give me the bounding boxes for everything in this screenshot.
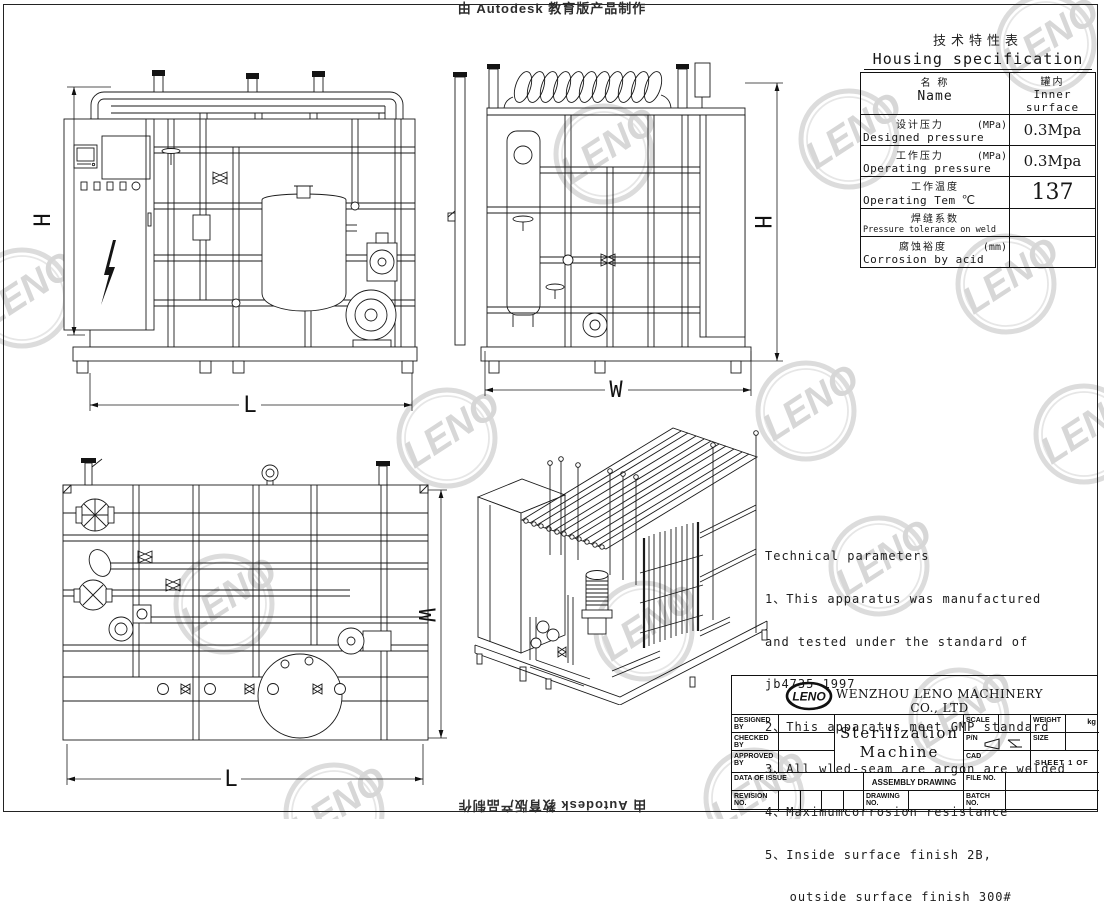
control-cabinet — [64, 119, 154, 330]
autodesk-watermark-bottom: 由 Autodesk 教育版产品制作 — [458, 797, 646, 816]
front-length-label: L — [243, 393, 256, 415]
iso-tube-bundle — [522, 428, 757, 549]
weight-unit: kg — [1066, 715, 1099, 733]
spec-name-zh: 名 称 — [863, 74, 1007, 89]
drawing-title: Sterilization Machine — [835, 715, 964, 773]
iso-motor — [582, 571, 612, 635]
spec-value-zh: 罐内 — [1041, 73, 1065, 88]
approved-by-value — [779, 751, 835, 773]
front-height-label: H — [31, 213, 56, 226]
tech-param-line: and tested under the standard of — [765, 635, 1066, 649]
plan-top-stubs — [81, 458, 390, 485]
coil-heat-exchanger — [504, 69, 671, 108]
iso-cabinet — [478, 479, 565, 653]
row-unit: (MPa) — [977, 120, 1007, 131]
spec-row-corrosion: 腐蚀裕度(mm) Corrosion by acid — [861, 236, 1095, 267]
spec-title-en: Housing specification — [864, 50, 1092, 70]
row-label-zh: 工作压力 — [863, 147, 977, 162]
plan-pump — [338, 628, 391, 654]
plan-tank — [258, 654, 342, 738]
spec-value-en: Inner surface — [1010, 88, 1095, 114]
row-value — [1010, 237, 1095, 267]
spec-row-operating-pressure: 工作压力(MPa) Operating pressure 0.3Mpa — [861, 145, 1095, 176]
date-of-issue-label: DATA OF ISSUE — [732, 773, 864, 791]
tech-param-line: outside surface finish 300# — [765, 890, 1066, 904]
checked-by-value — [779, 733, 835, 751]
front-base — [73, 347, 417, 373]
plan-dim-length: L — [67, 744, 423, 790]
front-top-piping — [91, 92, 403, 119]
title-block: LENO WENZHOU LENO MACHINERY CO., LTD DES… — [731, 675, 1098, 810]
revision-cell — [844, 791, 864, 811]
isometric-view — [460, 405, 790, 705]
iso-plate-pack — [640, 522, 703, 648]
row-value: 137 — [1010, 177, 1095, 208]
plan-frame — [63, 485, 428, 740]
row-value: 0.3Mpa — [1010, 115, 1095, 145]
front-top-stubs — [152, 70, 325, 92]
pn-cell: P/N — [964, 733, 1031, 751]
title-block-header: LENO WENZHOU LENO MACHINERY CO., LTD — [732, 676, 1097, 715]
projection-symbol-icon — [982, 737, 1028, 751]
revision-cell — [822, 791, 844, 811]
row-label-zh: 工作温度 — [863, 178, 1007, 193]
front-tank — [262, 186, 357, 311]
batch-no-label: BATCH NO. — [964, 791, 1006, 811]
checked-by-label: CHECKED BY — [732, 733, 779, 751]
approved-by-label: APPROVED BY — [732, 751, 779, 773]
side-dim-height: H — [745, 83, 783, 361]
designed-by-value — [779, 715, 835, 733]
side-width-label: W — [609, 378, 623, 403]
drawing-title-line1: Sterilization — [837, 724, 962, 743]
autodesk-watermark-top: 由 Autodesk 教育版产品制作 — [458, 0, 646, 17]
side-base — [481, 347, 751, 373]
drawing-title-line2: Machine — [837, 743, 962, 762]
row-label-en: Corrosion by acid — [863, 253, 1007, 266]
row-unit: ℃ — [962, 193, 976, 207]
spec-row-weld-tolerance: 焊缝系数 Pressure tolerance on weld — [861, 208, 1095, 236]
tech-param-line: 1、This apparatus was manufactured — [765, 592, 1066, 606]
spec-row-designed-pressure: 设计压力(MPa) Designed pressure 0.3Mpa — [861, 114, 1095, 145]
plan-valve-cluster — [74, 499, 180, 641]
side-view: W H — [445, 55, 790, 405]
assembly-drawing-label: ASSEMBLY DRAWING — [864, 773, 964, 791]
spec-title-zh: 技术特性表 — [860, 30, 1096, 49]
size-label: SIZE — [1031, 733, 1066, 751]
row-unit: (MPa) — [977, 151, 1007, 162]
revision-cell — [779, 791, 801, 811]
pn-label: P/N — [966, 735, 978, 742]
designed-by-label: DESIGNED BY — [732, 715, 779, 733]
scale-value — [999, 715, 1031, 733]
leno-logo: LENO — [784, 681, 834, 711]
spec-header-row: 名 称 Name 罐内 Inner surface — [861, 73, 1095, 114]
row-label-zh: 焊缝系数 — [863, 210, 1007, 225]
spec-name-en: Name — [863, 89, 1007, 104]
row-label-en: Operating pressure — [863, 162, 1007, 175]
iso-rails — [700, 505, 756, 636]
drawing-no-value — [909, 791, 964, 811]
front-view: H L — [15, 55, 435, 415]
revision-no-label: REVISION NO. — [732, 791, 779, 811]
row-unit: (mm) — [983, 242, 1007, 253]
row-value: 0.3Mpa — [1010, 146, 1095, 176]
row-label-en: Operating Tem — [863, 194, 956, 207]
side-cabinet — [700, 115, 745, 337]
revision-cell — [801, 791, 822, 811]
housing-spec-table: 技术特性表 Housing specification 名 称 Name 罐内 … — [860, 30, 1096, 268]
tech-param-line: Technical parameters — [765, 549, 1066, 563]
batch-no-value — [1006, 791, 1099, 811]
file-no-label: FILE NO. — [964, 773, 1006, 791]
size-value — [1066, 733, 1099, 751]
weight-label: WEIGHT — [1031, 715, 1066, 733]
row-label-zh: 腐蚀裕度 — [863, 238, 983, 253]
spec-grid: 名 称 Name 罐内 Inner surface 设计压力(MPa) Desi… — [860, 72, 1096, 268]
leno-logo-text: LENO — [792, 690, 826, 704]
sheet-label: SHEET 1 OF — [1031, 751, 1099, 773]
front-pump — [346, 290, 396, 347]
row-label-en: Designed pressure — [863, 131, 1007, 144]
cad-label: CAD — [964, 751, 1031, 773]
plan-piping — [63, 485, 428, 740]
flow-meter — [367, 233, 397, 281]
drawing-no-label: DRAWING NO. — [864, 791, 909, 811]
file-no-value — [1006, 773, 1099, 791]
tech-param-line: 5、Inside surface finish 2B, — [765, 848, 1066, 862]
row-value — [1010, 209, 1095, 236]
row-label-zh: 设计压力 — [863, 116, 977, 131]
side-column-vessel — [507, 131, 540, 327]
row-label-en: Pressure tolerance on weld — [863, 225, 1007, 235]
plan-width-label: W — [413, 608, 438, 622]
company-name: WENZHOU LENO MACHINERY CO., LTD — [832, 676, 1047, 715]
plan-view: W L — [45, 445, 455, 790]
plan-length-label: L — [224, 767, 237, 790]
scale-label: SCALE — [964, 715, 999, 733]
spec-row-operating-temp: 工作温度 Operating Tem℃ 137 — [861, 176, 1095, 208]
side-height-label: H — [749, 215, 774, 228]
front-dim-length: L — [90, 373, 412, 415]
